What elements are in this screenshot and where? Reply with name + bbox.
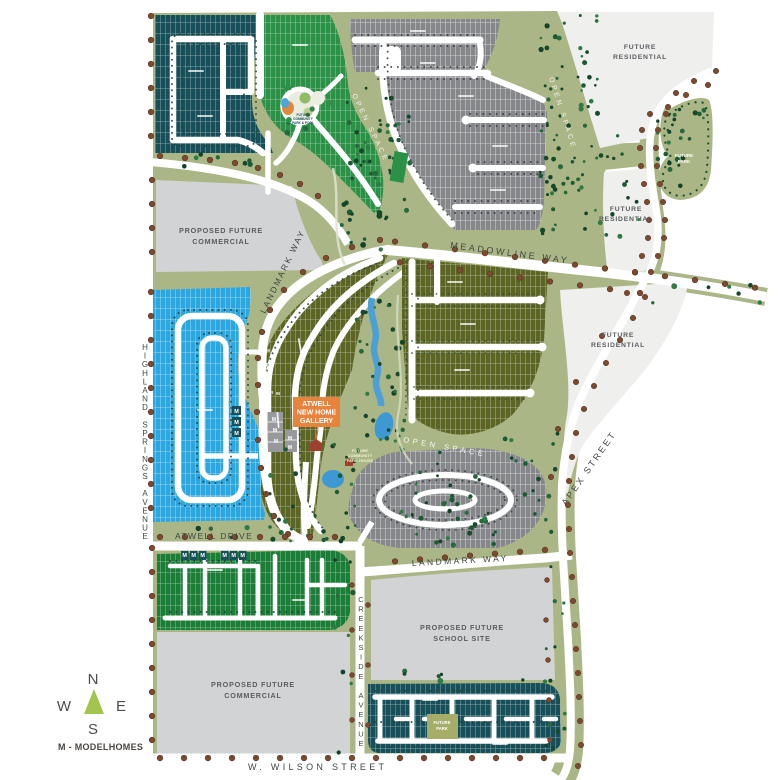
- svg-text:M: M: [234, 420, 239, 426]
- svg-text:E: E: [358, 710, 363, 719]
- svg-text:RESIDENTIAL: RESIDENTIAL: [613, 54, 667, 61]
- svg-text:K: K: [358, 633, 363, 642]
- svg-text:R: R: [358, 605, 364, 614]
- svg-text:RESIDENTIAL: RESIDENTIAL: [599, 216, 653, 223]
- svg-text:M: M: [274, 439, 278, 445]
- svg-text:A: A: [358, 691, 363, 700]
- svg-text:PARK HOUSE: PARK HOUSE: [347, 458, 374, 463]
- svg-text:ATWELL DRIVE: ATWELL DRIVE: [175, 531, 253, 541]
- svg-text:M: M: [266, 348, 270, 353]
- svg-text:PROPOSED FUTURE: PROPOSED FUTURE: [179, 226, 263, 235]
- svg-text:M: M: [269, 390, 273, 395]
- svg-text:M: M: [288, 445, 292, 451]
- svg-text:E: E: [358, 624, 363, 633]
- svg-text:M: M: [262, 389, 266, 394]
- svg-text:E: E: [358, 614, 363, 623]
- svg-text:M: M: [240, 553, 245, 559]
- svg-text:M: M: [234, 431, 239, 437]
- svg-text:M - MODELHOMES: M - MODELHOMES: [58, 742, 143, 752]
- svg-text:NEW HOME: NEW HOME: [297, 410, 337, 417]
- svg-text:I: I: [360, 653, 362, 662]
- svg-text:PARK: PARK: [436, 726, 448, 731]
- svg-text:PARK: PARK: [678, 159, 691, 164]
- svg-text:E: E: [358, 739, 363, 748]
- svg-text:FUTURE: FUTURE: [624, 44, 656, 51]
- svg-text:M: M: [234, 409, 239, 415]
- svg-text:M: M: [273, 428, 277, 434]
- svg-text:M: M: [288, 436, 292, 442]
- svg-text:COMMERCIAL: COMMERCIAL: [192, 237, 250, 246]
- svg-text:PARK & POOL: PARK & POOL: [292, 121, 314, 125]
- svg-text:FUTURE: FUTURE: [610, 206, 642, 213]
- svg-text:ATWELL: ATWELL: [302, 401, 331, 408]
- svg-text:S: S: [88, 721, 98, 738]
- svg-text:W. WILSON STREET: W. WILSON STREET: [248, 762, 387, 772]
- svg-text:S: S: [142, 472, 147, 481]
- svg-text:PROPOSED FUTURE: PROPOSED FUTURE: [420, 623, 504, 632]
- svg-text:V: V: [358, 701, 363, 710]
- svg-text:M: M: [231, 553, 236, 559]
- svg-text:COMMERCIAL: COMMERCIAL: [224, 691, 282, 700]
- svg-text:FUTURE: FUTURE: [602, 332, 634, 339]
- svg-text:D: D: [142, 403, 148, 412]
- svg-text:S: S: [358, 643, 363, 652]
- svg-text:U: U: [358, 729, 363, 738]
- svg-text:E: E: [358, 672, 363, 681]
- svg-text:M: M: [200, 553, 205, 559]
- svg-text:E: E: [142, 532, 147, 541]
- svg-text:D: D: [358, 662, 364, 671]
- svg-text:M: M: [222, 553, 227, 559]
- svg-text:M: M: [272, 417, 276, 423]
- svg-text:PROPOSED FUTURE: PROPOSED FUTURE: [211, 680, 295, 689]
- svg-text:GALLERY: GALLERY: [300, 418, 334, 425]
- svg-text:C: C: [358, 595, 364, 604]
- svg-text:E: E: [116, 698, 126, 715]
- svg-text:FUTURE: FUTURE: [675, 153, 693, 158]
- svg-text:M: M: [182, 553, 187, 559]
- svg-text:N: N: [88, 671, 99, 688]
- svg-text:M: M: [276, 391, 280, 396]
- svg-text:RESIDENTIAL: RESIDENTIAL: [591, 342, 645, 349]
- svg-text:M: M: [266, 362, 270, 367]
- svg-text:FUTURE: FUTURE: [434, 720, 451, 725]
- svg-text:W: W: [57, 698, 72, 715]
- svg-text:N: N: [358, 720, 363, 729]
- svg-text:M: M: [191, 553, 196, 559]
- svg-text:SCHOOL SITE: SCHOOL SITE: [433, 634, 490, 643]
